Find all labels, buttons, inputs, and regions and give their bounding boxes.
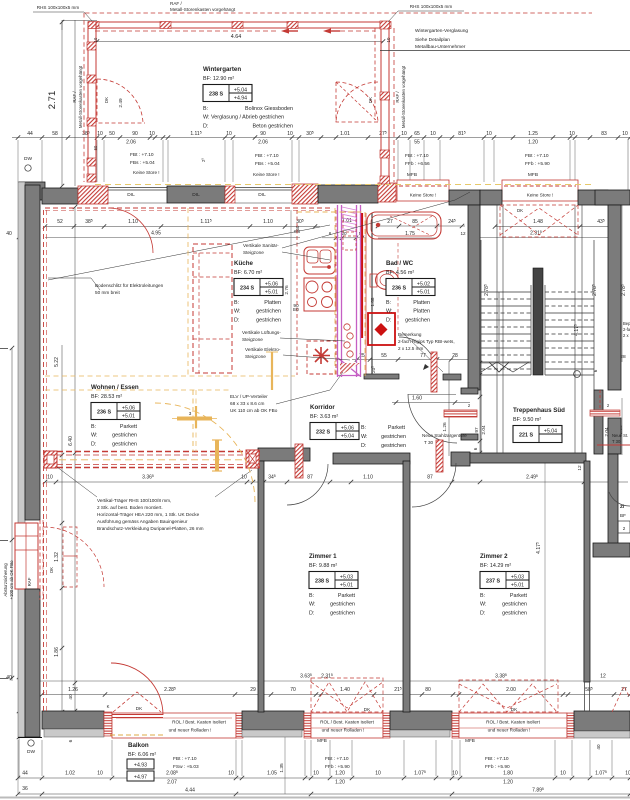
svg-text:m: m — [297, 467, 300, 471]
svg-text:gestrichen: gestrichen — [256, 317, 281, 323]
svg-text:BO: BO — [293, 307, 300, 312]
svg-text:44: 44 — [27, 131, 33, 137]
svg-text:27: 27 — [387, 219, 393, 225]
svg-text:W:: W: — [309, 602, 316, 608]
svg-text:Metall-Storenkasten vorgehängt: Metall-Storenkasten vorgehängt — [78, 65, 83, 128]
svg-text:6.40: 6.40 — [68, 436, 74, 446]
svg-text:10: 10 — [386, 37, 391, 42]
svg-text:2.49: 2.49 — [118, 98, 124, 108]
svg-text:BF: 9.50 m²: BF: 9.50 m² — [513, 417, 541, 423]
svg-text:2.06: 2.06 — [258, 140, 268, 146]
svg-text:B:: B: — [91, 424, 96, 430]
svg-text:+5.01: +5.01 — [265, 290, 278, 296]
svg-text:FFb : +5.90: FFb : +5.90 — [325, 764, 350, 770]
svg-text:+5.01: +5.01 — [122, 414, 135, 420]
svg-text:T 30: T 30 — [424, 440, 434, 445]
svg-text:4.64: 4.64 — [231, 34, 242, 40]
svg-text:Korridor: Korridor — [310, 404, 335, 411]
svg-text:B:: B: — [480, 593, 485, 599]
svg-text:W:: W: — [234, 309, 241, 315]
svg-text:2.76: 2.76 — [284, 285, 290, 295]
svg-text:BF: 12.90 m²: BF: 12.90 m² — [203, 76, 234, 82]
svg-text:D:: D: — [480, 610, 485, 616]
svg-text:29: 29 — [250, 687, 256, 693]
svg-text:2 Stk. auf best. Boden montier: 2 Stk. auf best. Boden montiert. — [97, 505, 163, 510]
svg-text:Steigzone: Steigzone — [245, 354, 266, 359]
svg-text:+4.93: +4.93 — [134, 763, 147, 769]
svg-text:W: Verglasung / Abrieb gestric: W: Verglasung / Abrieb gestrichen — [203, 115, 284, 121]
svg-text:36: 36 — [22, 786, 28, 792]
svg-text:BF: 6.06 m²: BF: 6.06 m² — [128, 752, 156, 758]
svg-text:87: 87 — [427, 475, 433, 481]
svg-text:10: 10 — [622, 131, 628, 137]
svg-text:MFB: MFB — [528, 172, 538, 178]
svg-text:55: 55 — [381, 353, 387, 359]
svg-text:DW: DW — [24, 156, 32, 162]
svg-text:FSw : +5.03: FSw : +5.03 — [173, 764, 199, 770]
svg-text:Balkon: Balkon — [128, 742, 149, 749]
svg-text:W:: W: — [91, 433, 98, 439]
svg-text:1.40: 1.40 — [340, 687, 350, 693]
svg-text:70: 70 — [290, 687, 296, 693]
svg-text:Neue Stahlzargentüre: Neue Stahlzargentüre — [422, 433, 467, 438]
svg-text:Zimmer 1: Zimmer 1 — [309, 553, 337, 560]
svg-text:BF: BF — [620, 513, 626, 518]
svg-text:ROL / Best. Kasten isoliert: ROL / Best. Kasten isoliert — [486, 720, 540, 725]
svg-text:1.02: 1.02 — [65, 771, 75, 777]
svg-text:+5.01: +5.01 — [511, 583, 524, 589]
svg-text:gestrichen: gestrichen — [256, 309, 281, 315]
svg-text:Wintergarten-Verglasung: Wintergarten-Verglasung — [415, 28, 468, 34]
svg-text:2: 2 — [623, 526, 626, 531]
svg-text:Keine Store !: Keine Store ! — [527, 193, 554, 198]
svg-text:Metall-Storenkasten vorgehängt: Metall-Storenkasten vorgehängt — [401, 65, 406, 128]
svg-text:4.95: 4.95 — [151, 231, 161, 237]
svg-text:+5.03: +5.03 — [340, 575, 353, 581]
svg-text:1.25: 1.25 — [528, 131, 538, 137]
svg-text:97: 97 — [474, 427, 480, 433]
svg-text:2-fach Rigips Typ RBI-wets,: 2-fach Rigips Typ RBI-wets, — [398, 339, 455, 344]
svg-text:50 mm breit: 50 mm breit — [95, 290, 120, 295]
svg-text:55: 55 — [414, 140, 420, 146]
svg-text:FBt : +7.10: FBt : +7.10 — [255, 153, 279, 159]
svg-text:10: 10 — [313, 771, 319, 777]
svg-text:DK: DK — [511, 707, 518, 712]
svg-text:B:: B: — [234, 300, 239, 306]
svg-text:FBt : +7.10: FBt : +7.10 — [325, 756, 349, 762]
svg-text:gestrichen: gestrichen — [330, 610, 355, 616]
svg-text:1.10: 1.10 — [263, 219, 273, 225]
svg-text:gestrichen: gestrichen — [112, 433, 137, 439]
svg-text:2.71: 2.71 — [47, 91, 58, 110]
svg-text:90: 90 — [260, 131, 266, 137]
svg-text:Bad / WC: Bad / WC — [386, 260, 414, 267]
svg-text:4.44: 4.44 — [185, 788, 195, 794]
svg-text:D:: D: — [386, 317, 391, 323]
svg-text:40: 40 — [6, 675, 12, 681]
svg-text:1.20: 1.20 — [335, 780, 345, 786]
svg-text:10: 10 — [560, 771, 566, 777]
svg-text:1.32: 1.32 — [54, 552, 60, 562]
svg-text:10: 10 — [430, 131, 436, 137]
svg-text:1.48: 1.48 — [533, 219, 543, 225]
svg-text:Wohnen / Essen: Wohnen / Essen — [91, 384, 139, 391]
svg-text:W:: W: — [386, 309, 393, 315]
svg-text:FBs : +5.04: FBs : +5.04 — [130, 160, 155, 166]
svg-text:1.05: 1.05 — [267, 771, 277, 777]
svg-text:W:: W: — [480, 602, 487, 608]
svg-text:gestrichen: gestrichen — [112, 441, 137, 447]
svg-text:40: 40 — [68, 694, 74, 700]
svg-text:44: 44 — [22, 771, 28, 777]
svg-text:6: 6 — [473, 447, 478, 450]
svg-text:DIL: DIL — [192, 192, 200, 198]
svg-text:234 S: 234 S — [240, 286, 254, 292]
svg-text:B:: B: — [309, 593, 314, 599]
svg-text:10: 10 — [47, 475, 53, 481]
svg-text:Steigzone: Steigzone — [242, 337, 263, 342]
svg-text:FBt : +7.10: FBt : +7.10 — [485, 756, 509, 762]
svg-text:Platten: Platten — [264, 300, 281, 306]
svg-text:MFB: MFB — [407, 172, 417, 178]
svg-text:2.00: 2.00 — [506, 687, 516, 693]
svg-text:Metallbau-Unternehmer: Metallbau-Unternehmer — [415, 44, 466, 50]
svg-text:FFb : +6.56: FFb : +6.56 — [405, 161, 430, 167]
svg-text:5.22: 5.22 — [54, 357, 60, 367]
svg-text:B:: B: — [203, 106, 208, 112]
svg-text:Keine Store !: Keine Store ! — [133, 170, 160, 175]
svg-text:+4.97: +4.97 — [134, 775, 147, 781]
svg-text:gestrichen: gestrichen — [381, 434, 406, 440]
svg-text:Zimmer 2: Zimmer 2 — [480, 553, 508, 560]
svg-text:+5.01: +5.01 — [417, 290, 430, 296]
svg-text:236 S: 236 S — [392, 286, 406, 292]
svg-text:10: 10 — [486, 131, 492, 137]
svg-text:238 S: 238 S — [315, 579, 329, 585]
svg-text:2.07: 2.07 — [167, 780, 177, 786]
svg-text:1.88: 1.88 — [370, 297, 375, 306]
svg-text:Keine Store !: Keine Store ! — [410, 193, 437, 198]
svg-text:1.20: 1.20 — [503, 780, 513, 786]
svg-text:+5.02: +5.02 — [417, 282, 430, 288]
svg-text:Parkett: Parkett — [510, 593, 528, 599]
svg-text:+100 cm ab OK FBo: +100 cm ab OK FBo — [9, 560, 14, 600]
svg-text:BF: 3.63 m²: BF: 3.63 m² — [310, 414, 338, 420]
svg-text:RAF /: RAF / — [395, 91, 400, 103]
svg-text:FBt : +7.10: FBt : +7.10 — [405, 153, 429, 159]
svg-text:1.10: 1.10 — [128, 219, 138, 225]
svg-text:6: 6 — [68, 739, 74, 742]
svg-text:65: 65 — [414, 131, 420, 137]
svg-text:Absturzsicherung: Absturzsicherung — [3, 563, 8, 597]
svg-text:BF: 4.56 m²: BF: 4.56 m² — [386, 270, 414, 276]
svg-text:DK: DK — [136, 706, 143, 711]
svg-text:1.10: 1.10 — [363, 475, 373, 481]
svg-text:10: 10 — [625, 771, 630, 777]
svg-text:DW: DW — [27, 749, 35, 755]
svg-text:MFB: MFB — [317, 738, 327, 743]
svg-text:BF: 28.53 m²: BF: 28.53 m² — [91, 394, 122, 400]
svg-text:BF: 6.70 m²: BF: 6.70 m² — [234, 270, 262, 276]
svg-text:10: 10 — [97, 771, 103, 777]
svg-text:gestrichen: gestrichen — [381, 443, 406, 449]
svg-text:DIL: DIL — [258, 192, 266, 198]
svg-text:D:: D: — [203, 123, 208, 129]
svg-text:RAF: RAF — [27, 577, 32, 586]
svg-text:W:: W: — [361, 434, 368, 440]
svg-text:68 x 33 x 8.6 cm: 68 x 33 x 8.6 cm — [230, 401, 264, 406]
svg-text:FBt : +7.10: FBt : +7.10 — [130, 152, 154, 158]
svg-text:83: 83 — [601, 131, 607, 137]
svg-text:B:: B: — [361, 425, 366, 431]
svg-text:DIL: DIL — [127, 192, 135, 198]
svg-text:DK: DK — [368, 97, 373, 103]
svg-text:1.26: 1.26 — [442, 422, 448, 432]
svg-text:B:: B: — [386, 300, 391, 306]
svg-text:1.20: 1.20 — [528, 140, 538, 146]
svg-text:+5.06: +5.06 — [122, 406, 135, 412]
svg-text:1.35: 1.35 — [279, 763, 285, 773]
svg-text:BF: 14.29 m²: BF: 14.29 m² — [480, 563, 511, 569]
svg-text:Horizontal-Träger HEA 220 mm,: Horizontal-Träger HEA 220 mm, 1 Stk. UK … — [97, 512, 200, 517]
svg-text:FFb : +5.90: FFb : +5.90 — [485, 764, 510, 770]
svg-text:+5.03: +5.03 — [511, 575, 524, 581]
svg-text:ROL / Best. Kasten isoliert: ROL / Best. Kasten isoliert — [172, 720, 226, 725]
svg-text:und neuer Rolladen !: und neuer Rolladen ! — [322, 728, 365, 733]
svg-text:Treppenhaus Süd: Treppenhaus Süd — [513, 407, 565, 414]
svg-text:6: 6 — [329, 231, 332, 236]
svg-text:77: 77 — [420, 353, 426, 359]
svg-text:RAF /: RAF / — [170, 1, 182, 6]
svg-text:D:: D: — [309, 610, 314, 616]
svg-text:Zi: Zi — [620, 504, 624, 510]
svg-text:2.06: 2.06 — [126, 140, 136, 146]
svg-text:Bolinox Giessboden: Bolinox Giessboden — [245, 106, 293, 112]
svg-text:Vertikale Lüftungs-: Vertikale Lüftungs- — [242, 330, 281, 335]
svg-text:Platten: Platten — [413, 300, 430, 306]
svg-text:gestrichen: gestrichen — [502, 602, 527, 608]
svg-text:3: 3 — [189, 411, 192, 416]
svg-text:MFB: MFB — [465, 738, 475, 743]
svg-text:232 S: 232 S — [316, 430, 330, 436]
svg-text:10: 10 — [149, 131, 155, 137]
svg-text:87: 87 — [307, 475, 313, 481]
svg-text:238 S: 238 S — [209, 92, 223, 98]
svg-text:FBs : +5.04: FBs : +5.04 — [255, 161, 280, 167]
svg-text:10: 10 — [569, 131, 575, 137]
svg-text:Platten: Platten — [413, 309, 430, 315]
svg-text:2 x 1: 2 x 1 — [623, 333, 630, 338]
svg-text:+5.04: +5.04 — [544, 429, 557, 435]
svg-text:Parkett: Parkett — [388, 425, 406, 431]
svg-text:+5.04: +5.04 — [234, 88, 247, 94]
svg-text:D:: D: — [234, 317, 239, 323]
svg-text:und neuer Rolladen !: und neuer Rolladen ! — [169, 728, 212, 733]
svg-text:236 S: 236 S — [97, 410, 111, 416]
svg-text:10: 10 — [226, 131, 232, 137]
svg-text:DK: DK — [104, 97, 109, 103]
svg-text:Küche: Küche — [234, 260, 253, 267]
svg-text:12: 12 — [600, 674, 606, 680]
svg-text:+5.06: +5.06 — [265, 282, 278, 288]
svg-text:85: 85 — [412, 219, 418, 225]
svg-text:Bemerkung: Bemerkung — [398, 332, 422, 337]
svg-text:2 x 12.5 mm: 2 x 12.5 mm — [398, 346, 423, 351]
svg-text:1.86: 1.86 — [54, 647, 60, 657]
svg-text:2-fach: 2-fach — [623, 327, 630, 332]
svg-text:RAF /: RAF / — [72, 91, 77, 103]
svg-text:221 S: 221 S — [519, 433, 533, 439]
svg-text:Bodenschlitz für Elektroleitun: Bodenschlitz für Elektroleitungen — [95, 283, 164, 288]
svg-text:gestrichen: gestrichen — [330, 602, 355, 608]
svg-text:10: 10 — [228, 771, 234, 777]
svg-text:Neue St.: Neue St. — [612, 433, 628, 438]
svg-text:T 30: T 30 — [612, 439, 621, 444]
svg-text:60: 60 — [295, 225, 300, 230]
svg-text:gestrichen: gestrichen — [502, 610, 527, 616]
svg-text:RHS 100x100x5 mm: RHS 100x100x5 mm — [410, 4, 453, 9]
svg-text:Parkett: Parkett — [120, 424, 138, 430]
svg-text:Vertikale Sanitär-: Vertikale Sanitär- — [243, 243, 279, 248]
svg-text:12: 12 — [577, 465, 583, 471]
svg-text:+5.06: +5.06 — [341, 426, 354, 432]
svg-text:Metall-Storenkasten vorgehängt: Metall-Storenkasten vorgehängt — [170, 7, 236, 12]
svg-text:10: 10 — [401, 131, 407, 137]
svg-text:BF: 9.88 m²: BF: 9.88 m² — [309, 563, 337, 569]
svg-text:UK 110 cm ab OK FBo: UK 110 cm ab OK FBo — [230, 408, 278, 413]
svg-text:1.01: 1.01 — [340, 131, 350, 137]
svg-text:90: 90 — [132, 131, 138, 137]
svg-text:FBt : +7.10: FBt : +7.10 — [173, 756, 197, 762]
svg-text:1.20: 1.20 — [335, 771, 345, 777]
svg-text:+4.94: +4.94 — [234, 96, 247, 102]
svg-text:RHS 100x100x5 mm: RHS 100x100x5 mm — [37, 5, 80, 10]
svg-text:gestrichen: gestrichen — [405, 317, 430, 323]
svg-text:FFb : +5.90: FFb : +5.90 — [525, 161, 550, 167]
svg-text:D:: D: — [361, 443, 366, 449]
svg-text:40: 40 — [6, 231, 12, 237]
svg-text:40: 40 — [596, 744, 601, 750]
svg-text:10: 10 — [287, 131, 293, 137]
svg-text:52: 52 — [57, 219, 63, 225]
svg-text:+5.04: +5.04 — [341, 434, 354, 440]
svg-text:50: 50 — [109, 131, 115, 137]
svg-text:+5.01: +5.01 — [340, 583, 353, 589]
svg-text:58: 58 — [52, 131, 58, 137]
svg-text:Wintergarten: Wintergarten — [203, 66, 241, 73]
svg-text:50: 50 — [93, 145, 98, 150]
svg-text:Steigzone: Steigzone — [243, 250, 264, 255]
svg-text:1.80: 1.80 — [503, 771, 513, 777]
svg-text:DK: DK — [517, 208, 523, 213]
svg-text:12: 12 — [460, 231, 466, 236]
svg-text:Bepl.: Bepl. — [623, 321, 630, 326]
svg-text:28: 28 — [452, 353, 458, 359]
svg-text:1.60: 1.60 — [412, 396, 422, 402]
svg-text:10: 10 — [93, 37, 98, 42]
svg-text:2.04: 2.04 — [481, 425, 487, 435]
svg-text:ELV / UP-Verteiler: ELV / UP-Verteiler — [230, 394, 268, 399]
svg-text:D:: D: — [91, 441, 96, 447]
svg-text:FBt : +7.10: FBt : +7.10 — [525, 153, 549, 159]
svg-text:DK: DK — [364, 707, 371, 712]
svg-text:DK: DK — [49, 567, 54, 573]
svg-text:Ausführung gemäss Angaben Baui: Ausführung gemäss Angaben Bauingenieur — [97, 519, 188, 524]
svg-text:1.26: 1.26 — [68, 687, 78, 693]
svg-text:10: 10 — [375, 771, 381, 777]
svg-text:K: K — [107, 704, 110, 709]
svg-text:80: 80 — [425, 687, 431, 693]
svg-text:Brandschutz-Verkleidung Duripa: Brandschutz-Verkleidung Duripanel-Platte… — [97, 526, 204, 531]
svg-text:237 S: 237 S — [486, 579, 500, 585]
svg-text:Beton gestrichen: Beton gestrichen — [253, 123, 293, 129]
svg-text:Vertikale Elektro-: Vertikale Elektro- — [245, 347, 281, 352]
svg-text:10: 10 — [452, 771, 458, 777]
svg-text:und neuer Rolladen !: und neuer Rolladen ! — [488, 728, 531, 733]
svg-text:Vertikal-Träger RHS 100/100/8: Vertikal-Träger RHS 100/100/8 mm, — [97, 498, 171, 503]
svg-text:Keine Store !: Keine Store ! — [253, 172, 280, 177]
svg-text:ROL / Best. Kasten isoliert: ROL / Best. Kasten isoliert — [320, 720, 374, 725]
svg-text:Parkett: Parkett — [338, 593, 356, 599]
svg-text:Siehe Detailplan: Siehe Detailplan — [415, 37, 450, 43]
